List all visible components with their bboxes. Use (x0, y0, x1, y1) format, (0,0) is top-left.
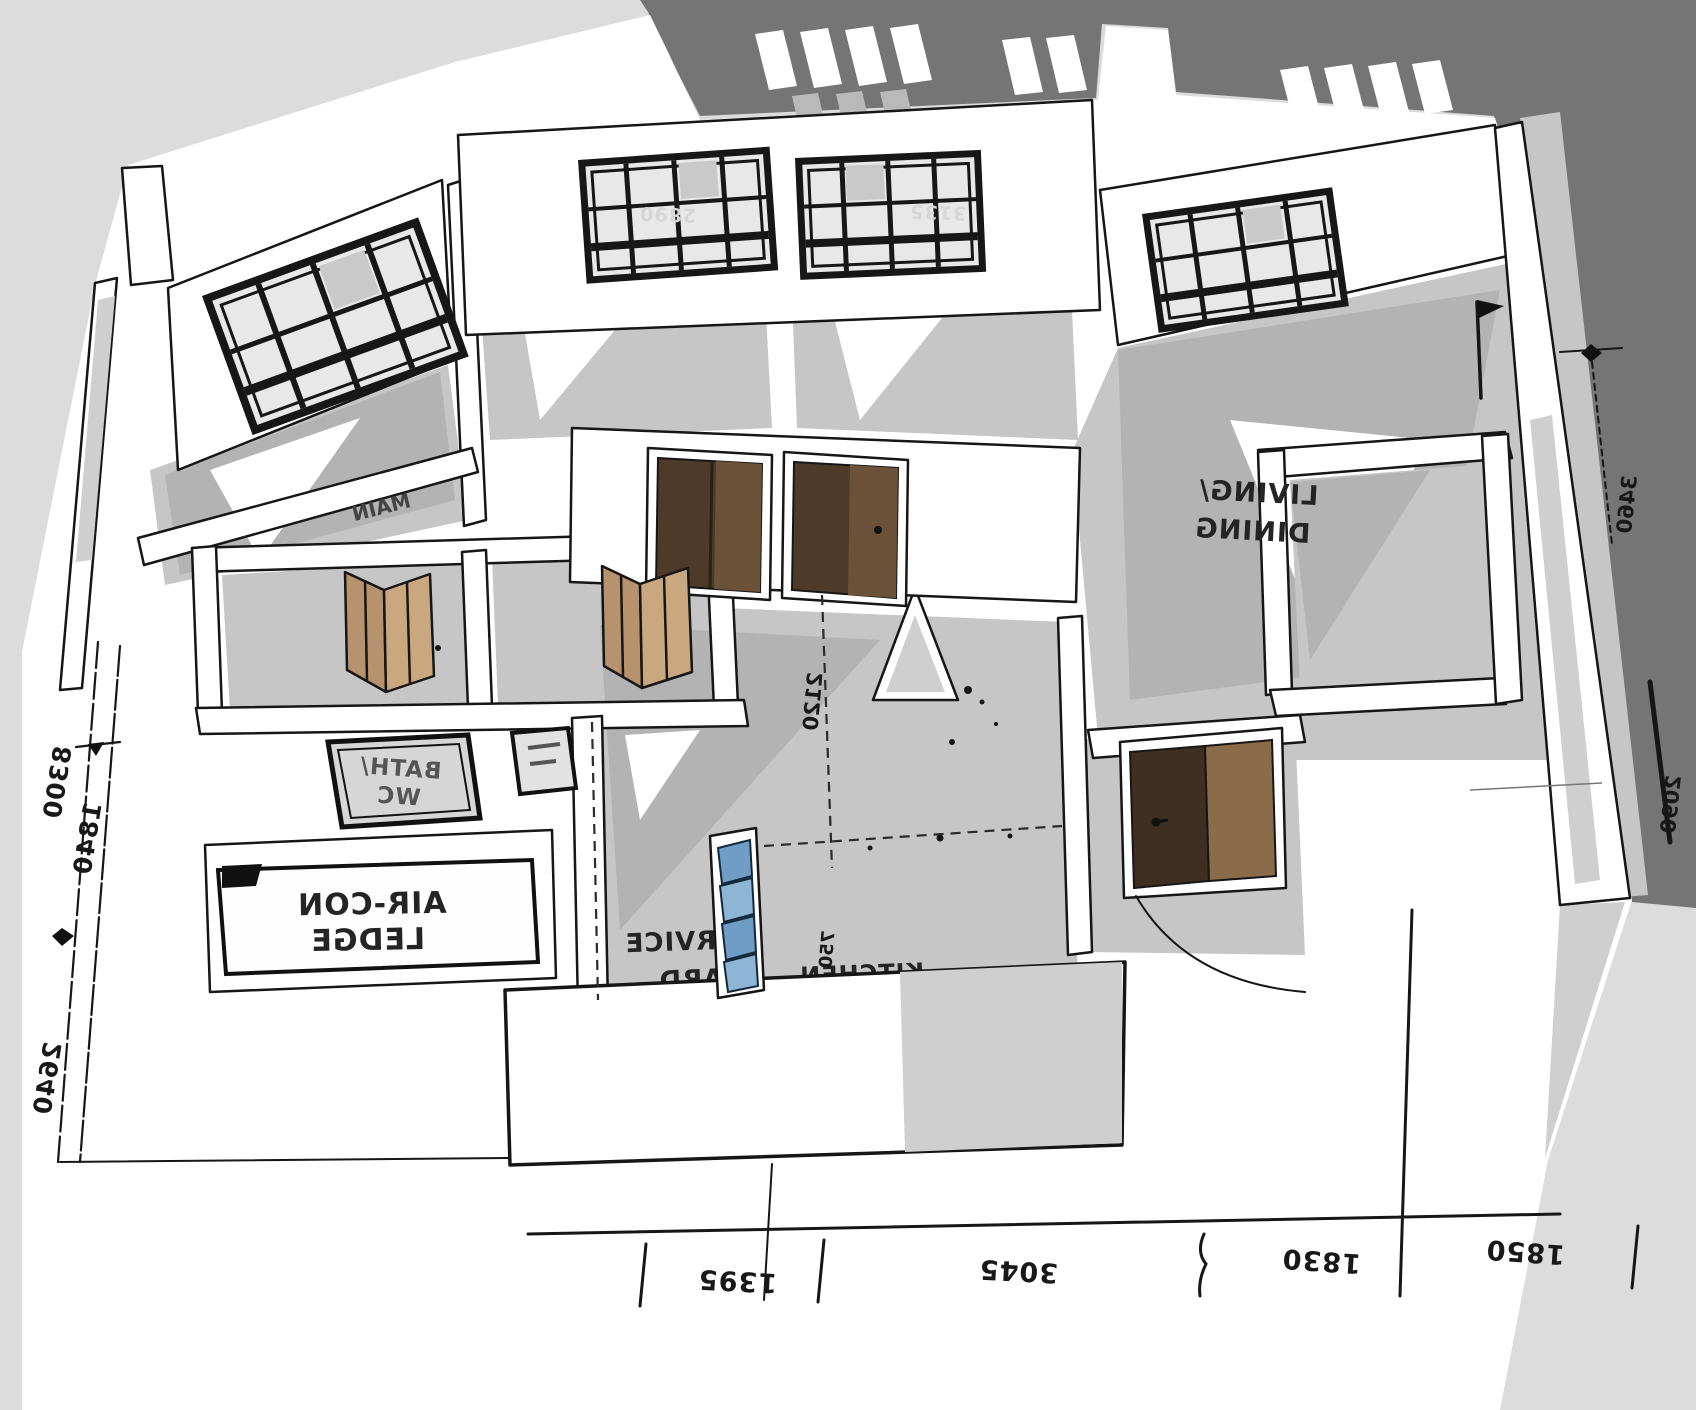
door-2-handle (874, 526, 882, 534)
svg-text:WC: WC (376, 783, 422, 812)
dim-bottom-3: 1830 (1281, 1242, 1362, 1278)
dim-bottom-1: 1395 (697, 1263, 778, 1298)
dim-bottom-2: 3045 (978, 1253, 1059, 1288)
aircon-sign: AIR-CON LEDGE (218, 860, 538, 974)
slab-shade (900, 962, 1122, 1152)
bifold-door-1 (345, 572, 434, 692)
wall-north-mid (458, 100, 1100, 335)
dim-bottom-4: 1850 (1485, 1233, 1566, 1269)
svg-text:LEDGE: LEDGE (310, 922, 425, 959)
louvre-window (710, 828, 764, 998)
label-living-1: LIVING/ (1198, 475, 1319, 512)
window2-dim: 2890 (639, 202, 697, 226)
dim-center: 2120 (799, 671, 828, 731)
wall-bath-west (192, 546, 222, 714)
dim-kitchen: 750 (815, 930, 839, 969)
wall-service-west (572, 716, 608, 1008)
bath-sign: BATH/ WC (328, 735, 480, 827)
wall-bath-mid (462, 550, 492, 708)
bifold-door-2 (602, 566, 692, 688)
window3-dim: 3135 (909, 200, 967, 224)
label-living-2: DINING (1194, 513, 1311, 550)
svg-text:AIR-CON: AIR-CON (297, 886, 447, 924)
bath-sign-2 (512, 728, 576, 794)
door-2 (782, 452, 908, 606)
3d-viewport[interactable]: SERVICE YARD KITCHEN (0, 0, 1696, 1410)
